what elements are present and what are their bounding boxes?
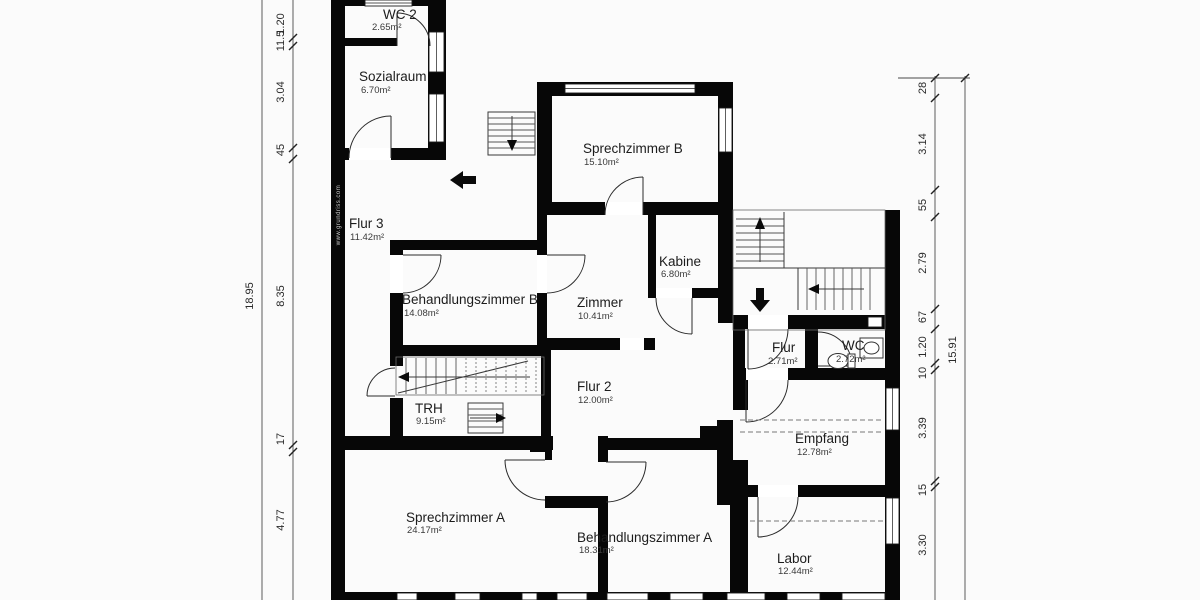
room-name: Sprechzimmer A <box>406 510 505 525</box>
room-name: WC <box>842 338 865 353</box>
room-label-behandlungszimmer-a: Behandlungszimmer A 18.31m² <box>577 530 712 556</box>
room-name: Flur 2 <box>577 379 612 394</box>
staircase-corridor <box>488 112 535 155</box>
room-label-zimmer: Zimmer 10.41m² <box>577 295 623 322</box>
room-area: 12.44m² <box>778 566 813 577</box>
watermark-text: www.grundriss.com <box>336 185 342 247</box>
dimension-label: 3.30 <box>917 534 929 555</box>
room-label-sozialraum: Sozialraum 6.70m² <box>359 69 427 96</box>
room-label-trh: TRH 9.15m² <box>415 401 446 427</box>
dimension-label-total-right: 15.91 <box>947 336 959 364</box>
dimension-label-total-left: 18.95 <box>244 282 256 310</box>
staircase-main <box>733 210 885 330</box>
dimension-label: 4.77 <box>275 509 287 530</box>
room-name: Sozialraum <box>359 69 427 84</box>
dimension-ticks-right <box>931 74 969 491</box>
room-label-wc2: WC 2 2.65m² <box>372 7 417 33</box>
dimension-label: 28 <box>917 82 929 94</box>
room-area: 12.00m² <box>578 395 613 406</box>
dimension-label: 10 <box>917 367 929 379</box>
room-area: 15.10m² <box>584 157 619 168</box>
floor-plan-svg: 1.20 11.5 3.04 45 8.35 17 4.77 18.95 28 … <box>0 0 1200 600</box>
room-name: Behandlungszimmer A <box>577 530 712 545</box>
room-label-empfang: Empfang 12.78m² <box>795 431 849 458</box>
room-area: 6.80m² <box>661 269 691 280</box>
room-area: 2.72m² <box>836 354 866 365</box>
entrance-arrow-down-icon <box>750 288 770 312</box>
room-label-flur: Flur 2.71m² <box>768 340 798 367</box>
room-area: 2.71m² <box>768 356 798 367</box>
room-name: Kabine <box>659 254 701 269</box>
dimension-label: 17 <box>275 433 287 445</box>
room-label-wc: WC 2.72m² <box>836 338 866 365</box>
floor-plan-page: 1.20 11.5 3.04 45 8.35 17 4.77 18.95 28 … <box>0 0 1200 600</box>
window <box>868 317 882 327</box>
stairs-direction-arrow-icon <box>496 413 506 423</box>
room-area: 12.78m² <box>797 447 832 458</box>
room-name: Labor <box>777 551 812 566</box>
room-label-sprechzimmer-a: Sprechzimmer A 24.17m² <box>406 510 505 536</box>
room-area: 24.17m² <box>407 525 442 536</box>
dimension-label: 2.79 <box>917 252 929 273</box>
room-label-labor: Labor 12.44m² <box>777 551 813 577</box>
room-area: 14.08m² <box>404 308 439 319</box>
dimension-label: 15 <box>917 484 929 496</box>
room-area: 2.65m² <box>372 22 402 33</box>
room-name: Empfang <box>795 431 849 446</box>
room-name: Flur 3 <box>349 216 384 231</box>
staircases <box>396 112 885 433</box>
room-area: 11.42m² <box>350 232 384 243</box>
room-name: Behandlungszimmer B <box>402 292 538 307</box>
wall <box>331 0 345 600</box>
room-area: 9.15m² <box>416 416 446 427</box>
dimension-label: 3.04 <box>275 81 287 102</box>
entrance-arrow-left-icon <box>450 171 476 189</box>
room-name: WC 2 <box>383 7 417 22</box>
room-area: 6.70m² <box>361 85 391 96</box>
room-name: Flur <box>772 340 796 355</box>
dimension-label: 3.39 <box>917 417 929 438</box>
room-label-flur-2: Flur 2 12.00m² <box>577 379 613 406</box>
dimension-label: 3.14 <box>917 133 929 154</box>
room-name: Zimmer <box>577 295 623 310</box>
dimension-label: 67 <box>917 311 929 323</box>
room-area: 18.31m² <box>579 545 614 556</box>
stairs-direction-arrow-icon <box>507 140 517 151</box>
room-area: 10.41m² <box>578 311 613 322</box>
stairs-left-arrow-icon <box>808 284 819 294</box>
room-label-kabine: Kabine 6.80m² <box>659 254 701 280</box>
dimension-label: 1.20 <box>917 336 929 357</box>
dimension-label: 45 <box>275 144 287 156</box>
stairs-direction-arrow-icon <box>398 372 409 382</box>
dimension-label: 11.5 <box>275 31 287 52</box>
room-label-sprechzimmer-b: Sprechzimmer B 15.10m² <box>583 141 683 168</box>
room-name: Sprechzimmer B <box>583 141 683 156</box>
room-label-behandlungszimmer-b: Behandlungszimmer B 14.08m² <box>402 292 538 319</box>
dimension-label: 8.35 <box>275 285 287 306</box>
room-name: TRH <box>415 401 443 416</box>
room-label-flur-3: Flur 3 11.42m² <box>349 216 384 243</box>
dimension-label: 55 <box>917 199 929 211</box>
